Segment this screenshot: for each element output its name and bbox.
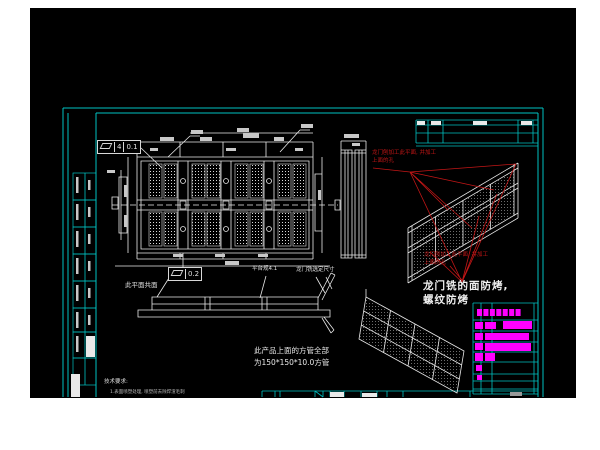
flatness-tolerance-frame-top: 4 0.1: [97, 140, 141, 154]
flatness-icon: [169, 269, 185, 279]
plan-hatched-panels: [149, 164, 306, 246]
coplanar-label: 此平面共面: [125, 282, 158, 289]
drawing-linework: [0, 0, 600, 450]
tube-note-line1: 此产品上面的方管全部: [254, 345, 329, 356]
fcf-value: 0.1: [123, 142, 139, 152]
iso-view-bottom-fill: [360, 299, 462, 391]
red-note-top-line1: 龙门刨加工此平面, 并加工: [372, 150, 436, 157]
platform-label: 平台规4.1: [252, 266, 277, 273]
revision-table: [416, 120, 538, 146]
frame-signature-column: [71, 173, 96, 397]
surface-note-line1: 龙门铣的面防烤,: [423, 280, 509, 293]
red-note-top-line2: 上面的孔: [372, 158, 394, 165]
section-view: [335, 141, 366, 258]
mill-size-label: 龙门铣选定尺寸: [296, 267, 335, 274]
fcf-value: 0.2: [185, 269, 201, 279]
fcf-datum: 4: [114, 142, 123, 152]
surface-note-line2: 螺纹防烤: [423, 294, 469, 307]
cad-drawing-screenshot: 4 0.1 0.2 此平面共面 平台规4.1 龙门铣选定尺寸 龙门刨加工此平面,…: [0, 0, 600, 450]
process-table: [473, 303, 538, 394]
flatness-icon: [98, 142, 114, 152]
tech-requirements-title: 技术要求:: [104, 379, 128, 386]
flatness-tolerance-frame-mid: 0.2: [168, 267, 202, 281]
red-note-bottom-line1: 龙门刨加工此平面, 并加工: [424, 252, 488, 259]
tech-requirements-item1: 1.表面喷塑处理, 喷塑前去除焊渣毛刺: [110, 389, 185, 396]
red-note-bottom-line2: 上面的孔: [424, 260, 446, 267]
tube-note-line2: 为150*150*10.0方管: [254, 357, 329, 368]
